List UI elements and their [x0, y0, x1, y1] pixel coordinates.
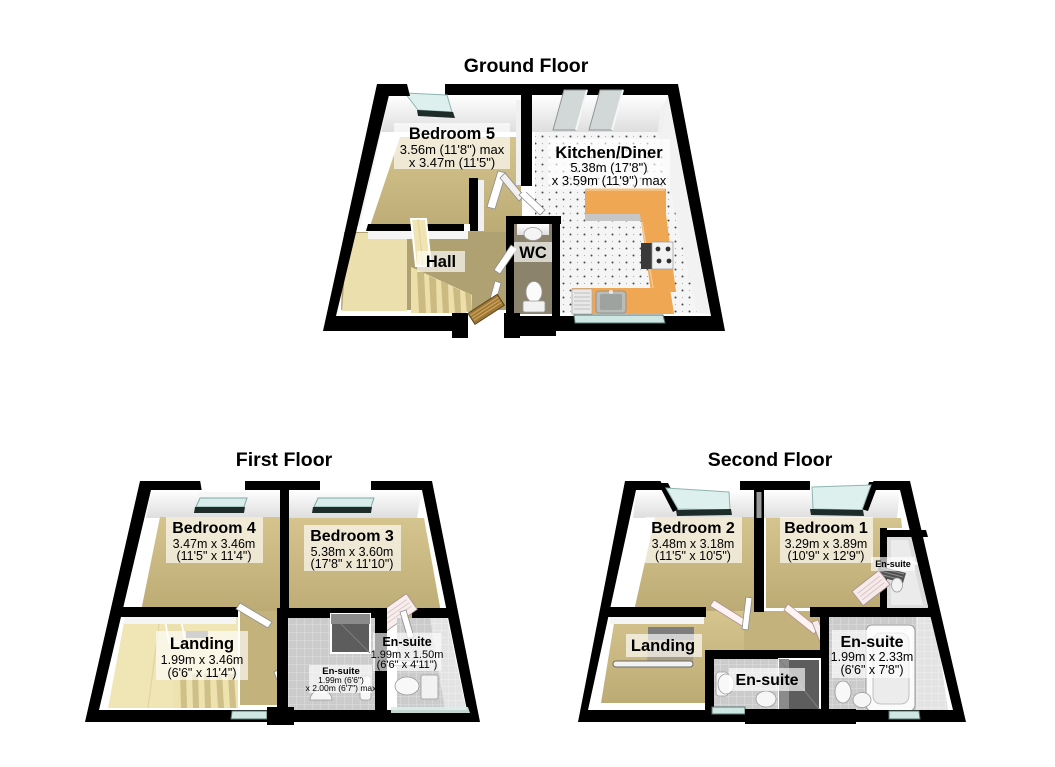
svg-text:Landing: Landing [170, 635, 234, 653]
svg-text:First Floor: First Floor [236, 449, 333, 471]
svg-text:En-suite: En-suite [382, 635, 431, 649]
svg-text:Bedroom 2: Bedroom 2 [651, 520, 735, 537]
svg-text:x 3.47m (11'5"): x 3.47m (11'5") [409, 155, 495, 170]
svg-text:Bedroom 3: Bedroom 3 [310, 528, 394, 545]
svg-text:Ground Floor: Ground Floor [464, 55, 589, 77]
svg-text:En-suite: En-suite [735, 672, 798, 689]
svg-text:(6'6" x 11'4"): (6'6" x 11'4") [167, 666, 236, 680]
svg-text:1.99m x 2.33m: 1.99m x 2.33m [831, 650, 914, 664]
svg-text:(11'5" x 11'4"): (11'5" x 11'4") [176, 549, 251, 563]
svg-text:Landing: Landing [631, 637, 695, 655]
svg-text:(6'6" x 7'8"): (6'6" x 7'8") [841, 663, 904, 677]
svg-text:Bedroom 4: Bedroom 4 [172, 520, 256, 537]
svg-text:Bedroom 5: Bedroom 5 [409, 125, 495, 143]
svg-text:1.99m x 3.46m: 1.99m x 3.46m [161, 653, 244, 667]
svg-text:(6'6" x 4'11"): (6'6" x 4'11") [377, 659, 438, 671]
svg-text:En-suite: En-suite [840, 634, 903, 651]
svg-text:(11'5" x 10'5"): (11'5" x 10'5") [655, 549, 731, 563]
svg-text:Second Floor: Second Floor [708, 449, 833, 471]
svg-text:Hall: Hall [426, 253, 456, 271]
svg-text:(10'9" x 12'9"): (10'9" x 12'9") [788, 549, 865, 563]
svg-text:WC: WC [519, 244, 547, 262]
svg-text:x 2.00m (6'7") max: x 2.00m (6'7") max [306, 683, 378, 693]
svg-text:x 3.59m (11'9") max: x 3.59m (11'9") max [552, 173, 667, 188]
svg-text:Bedroom 1: Bedroom 1 [784, 520, 868, 537]
svg-text:(17'8" x 11'10"): (17'8" x 11'10") [311, 557, 394, 571]
svg-text:En-suite: En-suite [875, 559, 911, 569]
